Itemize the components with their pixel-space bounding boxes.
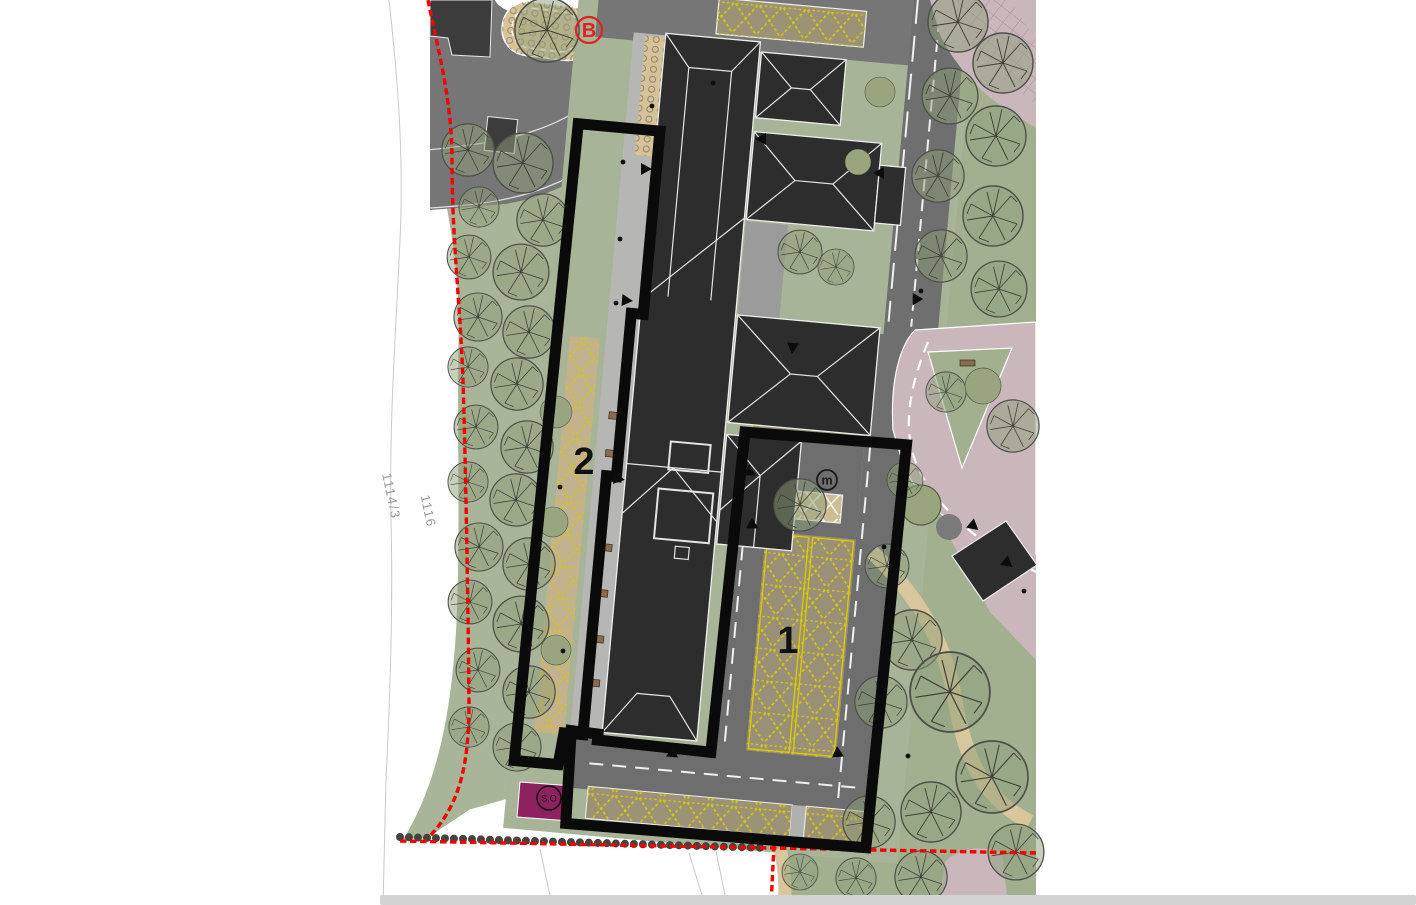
so-marker-label: S.O	[541, 794, 557, 804]
site-plan-map[interactable]: B m S.O 1 2 1114/3 1116	[0, 0, 1416, 905]
area-label-2: 2	[573, 441, 594, 483]
m-marker-label: m	[821, 474, 832, 488]
bus-stop-label: B	[582, 20, 596, 42]
area-label-1: 1	[777, 620, 798, 662]
site-plan-page: B m S.O 1 2 1114/3 1116	[0, 0, 1416, 905]
horizontal-scrollbar[interactable]	[380, 895, 1416, 905]
